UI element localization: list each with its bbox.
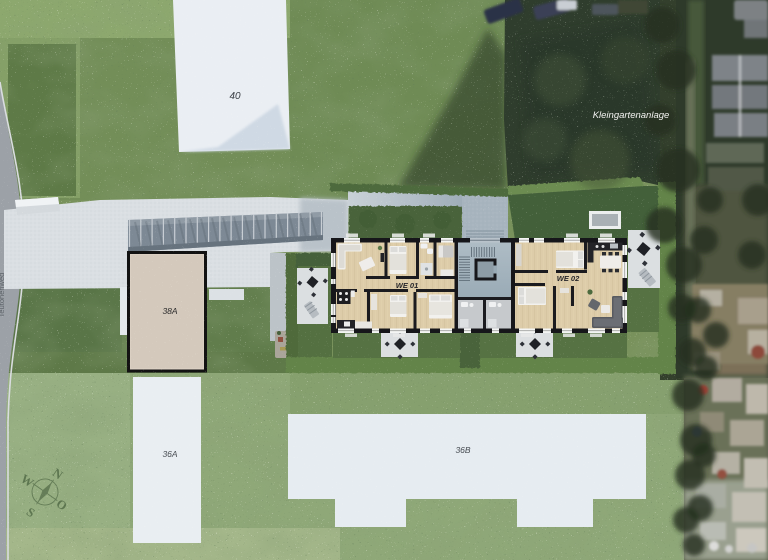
svg-text:36B: 36B bbox=[455, 445, 470, 455]
svg-text:38A: 38A bbox=[162, 306, 177, 316]
svg-text:WE 02: WE 02 bbox=[557, 274, 580, 283]
svg-text:40: 40 bbox=[229, 91, 241, 102]
svg-text:36A: 36A bbox=[162, 449, 177, 459]
svg-text:WE 01: WE 01 bbox=[396, 281, 419, 290]
svg-text:Kleingartenanlage: Kleingartenanlage bbox=[593, 110, 670, 121]
